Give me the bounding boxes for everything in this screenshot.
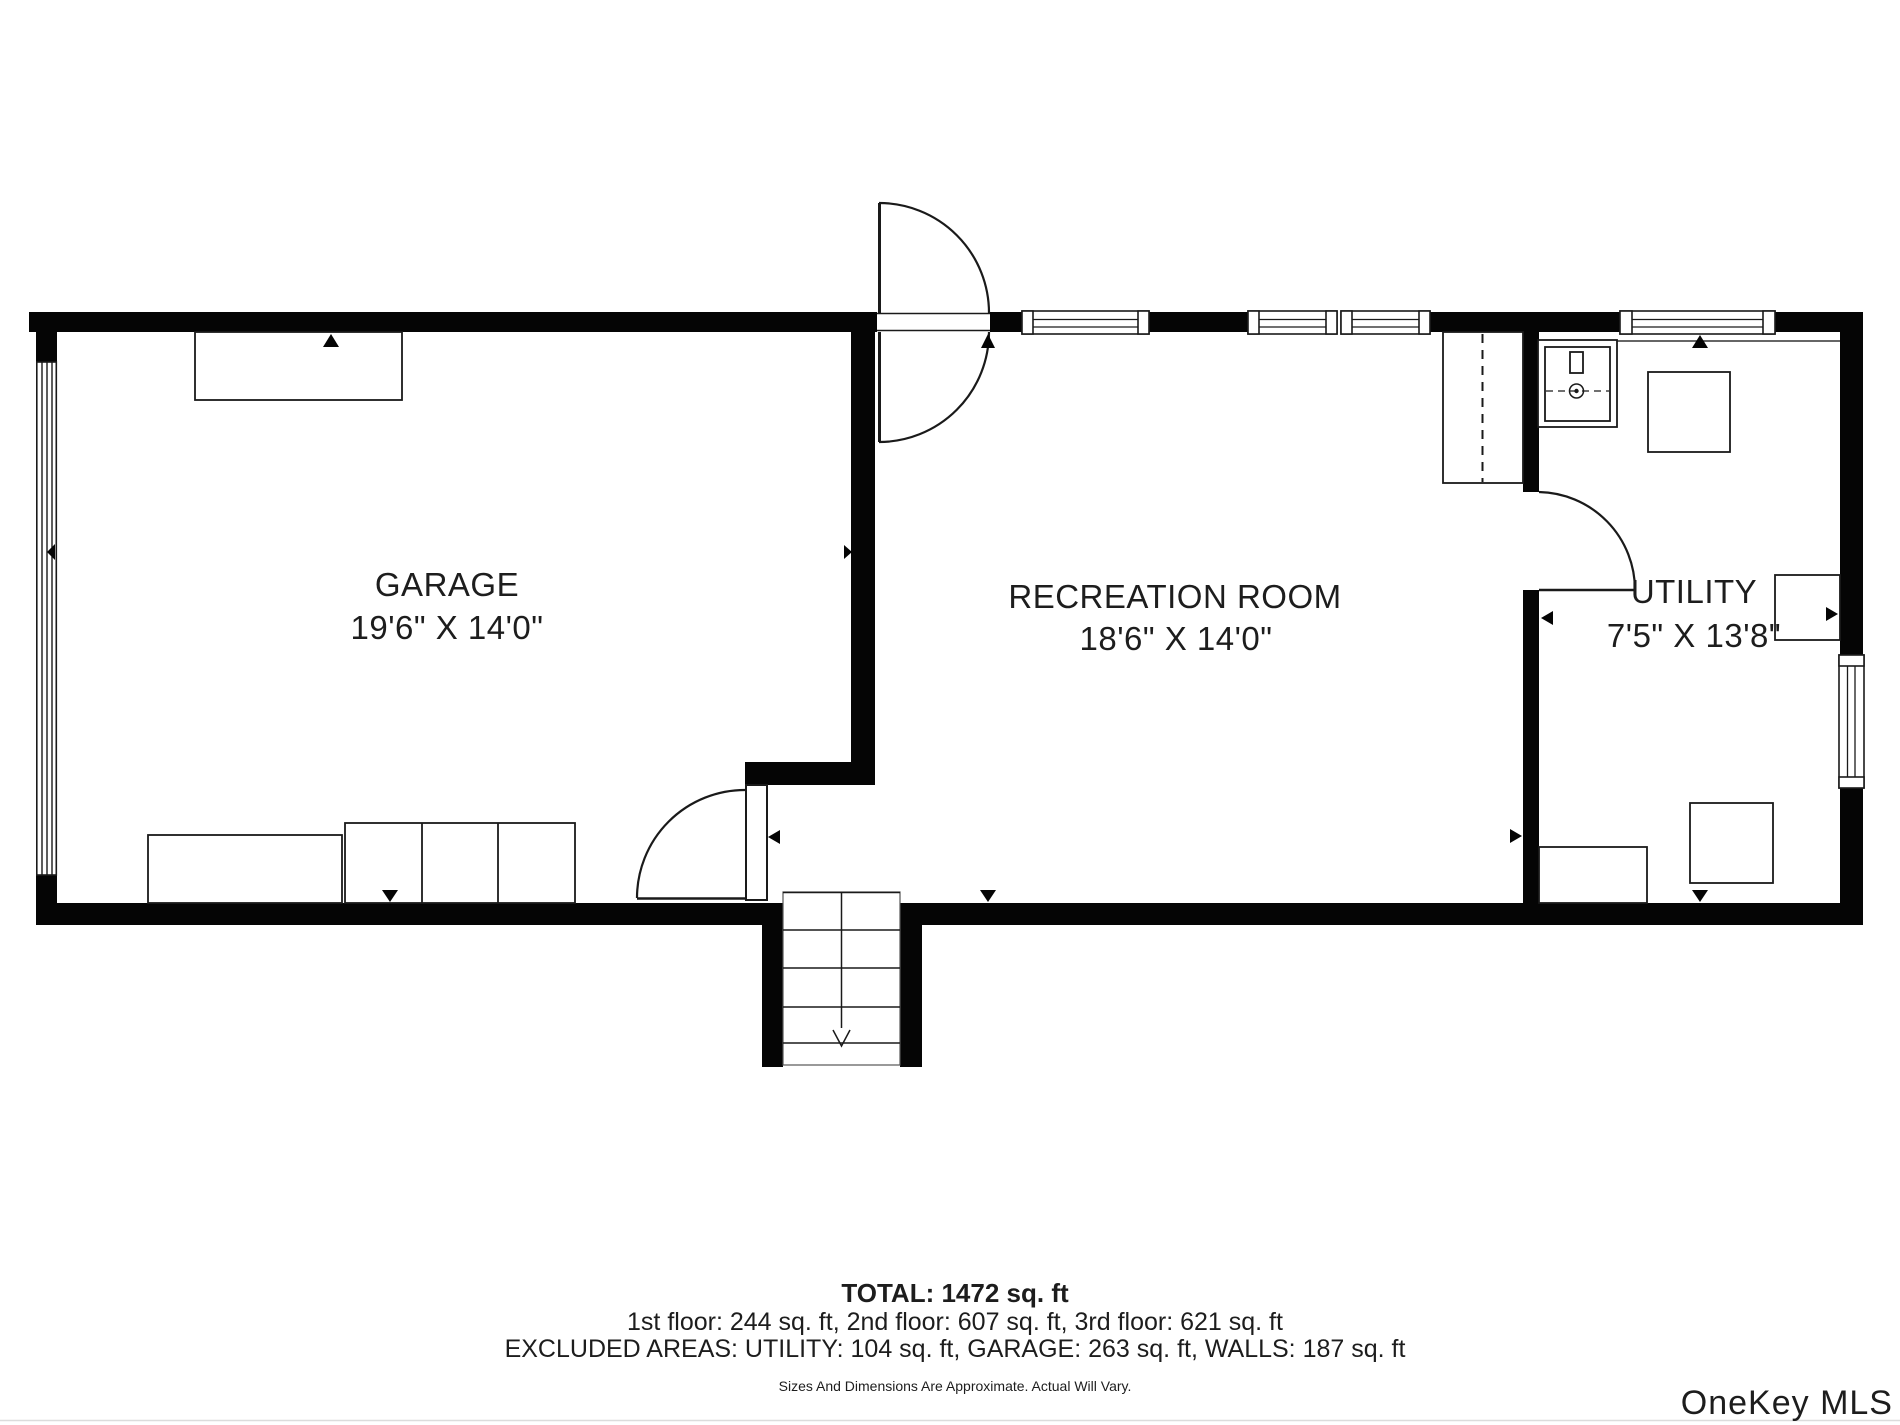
wall-top-rec-mid [1149,312,1248,332]
closet [1443,332,1523,483]
wall-garage-rec-jog [745,762,875,785]
staircase [783,892,900,1065]
wall-rec-utility-upper [1523,332,1539,492]
door-swing-arc [879,332,989,442]
garage-roll-door [37,362,57,875]
room-dims-garage: 19'6" X 14'0" [351,609,544,646]
door-swing-arc [1539,492,1635,590]
interior-walls [745,332,1539,903]
entry-door [877,203,990,442]
rec-utility-door [1539,492,1635,590]
wall-rec-utility-lower [1523,590,1539,903]
utility-counter [1539,847,1647,903]
marker-rec-bottom [980,890,996,902]
door-swing-arc [637,790,745,898]
door-leaf [746,785,767,900]
wall-top-garage [29,312,877,332]
marker-utility-left [1541,611,1553,625]
floor-plan-drawing: GARAGE 19'6" X 14'0" RECREATION ROOM 18'… [0,0,1900,1425]
garage-storage-unit [195,332,402,400]
wall-garage-rec-divider [851,332,875,762]
room-dims-utility: 7'5" X 13'8" [1607,617,1781,654]
wall-top-entry-right [990,312,1022,332]
wall-right-bottom [1840,788,1863,925]
floor-plan-page: GARAGE 19'6" X 14'0" RECREATION ROOM 18'… [0,0,1900,1425]
room-label-recreation: RECREATION ROOM [1008,578,1341,615]
marker-rec-right [1510,829,1522,843]
marker-rec-top [981,334,995,348]
room-label-garage: GARAGE [375,566,519,603]
marker-garage-right [844,545,852,559]
door-swing-arc [879,203,989,313]
utility-unit-right [1775,575,1840,640]
garage-rec-door [637,785,767,900]
window-right-wall [1839,655,1864,788]
wall-left-top [36,312,57,362]
sink-faucet [1570,352,1583,373]
watermark: OneKey MLS [1681,1384,1893,1422]
garage-workbench [148,835,342,903]
utility-washer [1690,803,1773,883]
wall-bottom-left [36,903,762,925]
window [1248,311,1337,334]
windows-top-wall [1022,311,1775,334]
marker-utility-bottom [1692,890,1708,902]
window [1022,311,1149,334]
window [1341,311,1430,334]
stairwell-wall-right [900,903,922,1067]
marker-rec-left [768,830,780,844]
floor-areas-text: 1st floor: 244 sq. ft, 2nd floor: 607 sq… [627,1308,1283,1336]
total-area-text: TOTAL: 1472 sq. ft [841,1278,1069,1308]
excluded-areas-text: EXCLUDED AREAS: UTILITY: 104 sq. ft, GAR… [505,1335,1406,1363]
wall-right-top [1840,312,1863,655]
garage-cabinet-three-section [345,823,575,903]
disclaimer-text: Sizes And Dimensions Are Approximate. Ac… [779,1378,1132,1394]
wall-top-rec-right [1430,312,1620,332]
utility-sink [1538,340,1617,427]
utility-water-heater [1648,372,1730,452]
stairwell-wall-left [762,903,783,1067]
wall-bottom-right [922,903,1863,925]
room-label-utility: UTILITY [1631,573,1757,610]
room-dims-recreation: 18'6" X 14'0" [1080,620,1273,657]
window [1620,311,1775,334]
